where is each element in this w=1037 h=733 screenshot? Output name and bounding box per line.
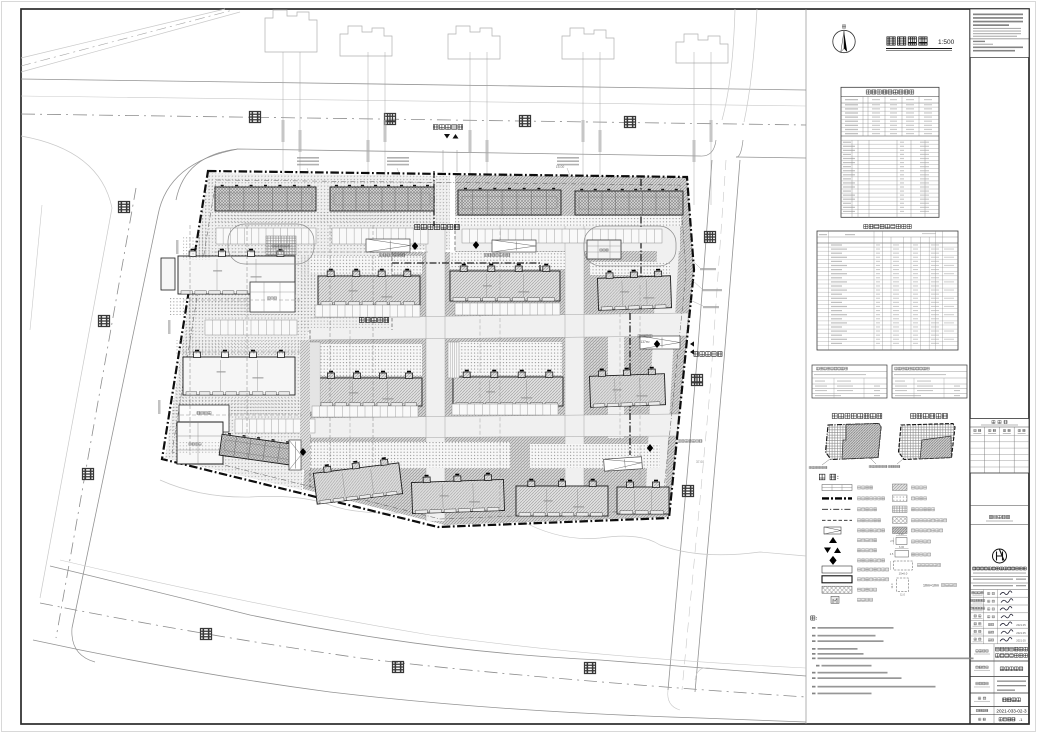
svg-text:137m²: 137m²: [640, 340, 649, 344]
svg-text:11.0: 11.0: [890, 583, 894, 588]
svg-text:2.5: 2.5: [890, 539, 894, 543]
svg-text:2.5: 2.5: [890, 552, 894, 556]
svg-text:6.00: 6.00: [899, 545, 905, 549]
svg-text:-1: -1: [1019, 718, 1022, 722]
svg-text:2021.05: 2021.05: [1016, 639, 1026, 643]
svg-text:37.00: 37.00: [696, 460, 704, 464]
svg-text:1:500: 1:500: [938, 39, 955, 46]
svg-text:15×6.0: 15×6.0: [899, 572, 908, 576]
svg-text:15.00: 15.00: [556, 165, 565, 169]
svg-text:5.30: 5.30: [898, 532, 904, 536]
svg-text:10m×10m: 10m×10m: [923, 584, 939, 588]
svg-text:2021-033-02-3: 2021-033-02-3: [996, 708, 1027, 713]
svg-text:2021.05: 2021.05: [1016, 631, 1026, 635]
svg-text:11.0: 11.0: [900, 593, 905, 597]
svg-text:2021.05: 2021.05: [1016, 623, 1026, 627]
